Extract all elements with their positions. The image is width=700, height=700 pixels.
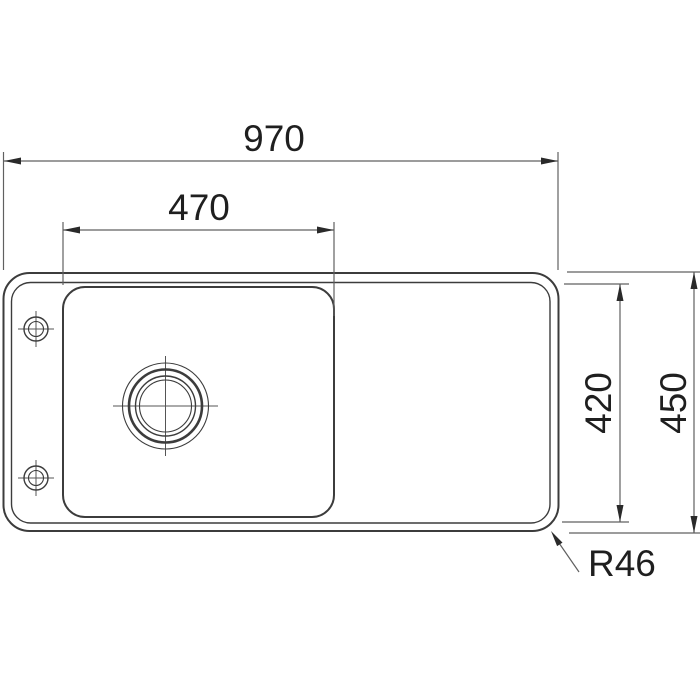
corner-radius-callout: R46 (551, 531, 656, 584)
arrowhead-right-icon (541, 158, 558, 165)
dimension-label-bowl-width: 470 (168, 187, 230, 228)
arrowhead-right-icon (317, 227, 334, 234)
sink-rim-outline (12, 283, 551, 524)
leader-arrowhead-icon (551, 531, 563, 546)
dimension-bowl-width: 470 (63, 187, 334, 316)
corner-radius-label: R46 (588, 543, 656, 584)
bowl-outline (63, 287, 334, 517)
drain (113, 356, 218, 456)
dimension-overall-width: 970 (4, 118, 559, 270)
dimension-label-inner-depth: 420 (578, 372, 619, 434)
drawing-stage: 970 470 420 450 (0, 0, 700, 700)
faucet-hole-bottom (18, 460, 54, 496)
sink-outer-outline (4, 273, 559, 531)
arrowhead-left-icon (4, 158, 21, 165)
leader-line (559, 543, 579, 572)
arrowhead-left-icon (63, 227, 80, 234)
dimension-label-overall-depth: 450 (653, 372, 694, 434)
dimension-inner-depth: 420 (562, 284, 629, 522)
arrowhead-up-icon (691, 272, 698, 289)
faucet-hole-top (18, 311, 54, 347)
arrowhead-down-icon (691, 516, 698, 533)
arrowhead-up-icon (617, 284, 624, 301)
sink-body (4, 273, 559, 531)
dimension-label-overall-width: 970 (243, 118, 305, 159)
arrowhead-down-icon (617, 505, 624, 522)
sink-technical-drawing: 970 470 420 450 (0, 0, 700, 700)
